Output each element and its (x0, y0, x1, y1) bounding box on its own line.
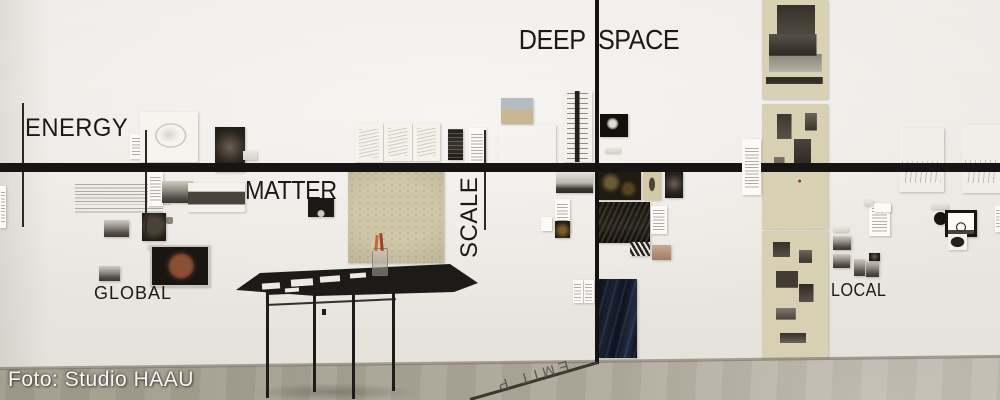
drafting-table (0, 0, 1000, 400)
table-hook (322, 309, 326, 315)
artwork-item (262, 282, 280, 289)
table-leg (313, 292, 316, 392)
table-leg (352, 289, 355, 399)
brush (379, 233, 384, 251)
exhibition-photo: ENERGY DEEP SPACE MATTER SCALE GLOBAL LO… (0, 0, 1000, 400)
table-rail (266, 298, 396, 306)
photo-credit: Foto: Studio HAAU (8, 368, 194, 392)
brush-cup (372, 248, 388, 276)
table-leg (392, 287, 395, 391)
table-leg (266, 293, 269, 398)
